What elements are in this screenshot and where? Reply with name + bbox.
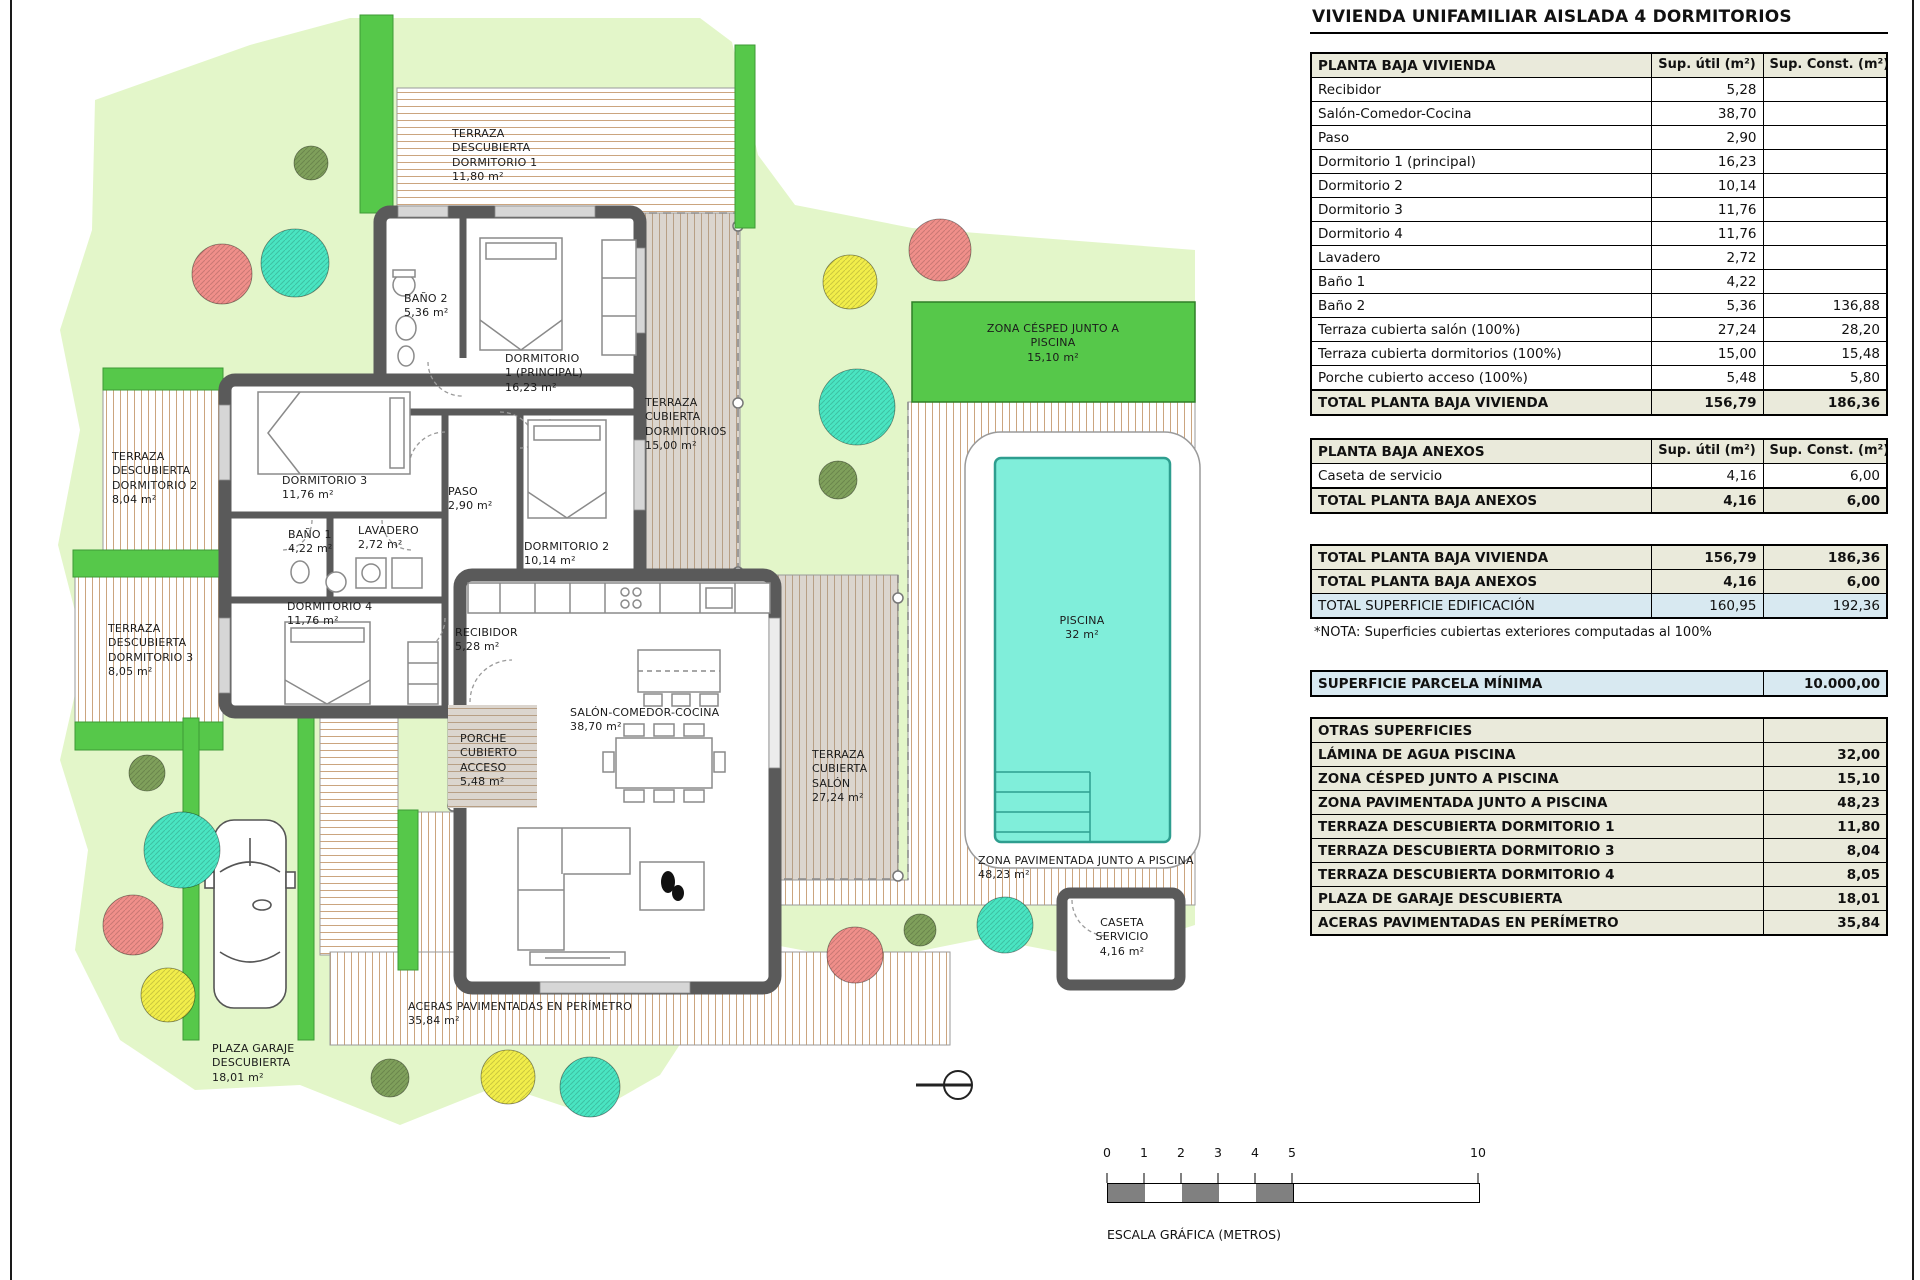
tree-olive (819, 461, 857, 499)
table-cell: 2,72 (1651, 246, 1763, 270)
label-paso: PASO 2,90 m² (448, 485, 493, 514)
table-cell: 11,76 (1651, 222, 1763, 246)
scale-tick-label: 2 (1177, 1145, 1185, 1160)
sheet-border-right (1912, 0, 1914, 1280)
table-cell (1763, 174, 1887, 198)
hedge-porch-side (398, 810, 418, 970)
label-caseta: CASETA SERVICIO 4,16 m² (1096, 916, 1149, 959)
table-cell: TERRAZA DESCUBIERTA DORMITORIO 4 (1311, 863, 1763, 887)
table-cell: 6,00 (1763, 464, 1887, 489)
table-cell: 156,79 (1651, 390, 1763, 415)
table-cell (1763, 222, 1887, 246)
table-cell: Baño 2 (1311, 294, 1651, 318)
scale-tick-mark (1255, 1173, 1256, 1183)
table-row: Lavadero2,72 (1311, 246, 1887, 270)
label-plaza-garaje: PLAZA GARAJE DESCUBIERTA 18,01 m² (212, 1042, 294, 1085)
tree-olive (904, 914, 936, 946)
tree-olive (129, 755, 165, 791)
label-porche: PORCHE CUBIERTO ACCESO 5,48 m² (460, 732, 517, 789)
parcela-label: SUPERFICIE PARCELA MÍNIMA (1311, 671, 1763, 696)
table-row: Terraza cubierta dormitorios (100%)15,00… (1311, 342, 1887, 366)
table-cell: 156,79 (1651, 545, 1763, 570)
table-cell: 192,36 (1763, 594, 1887, 619)
bed-dormitorio3 (258, 392, 410, 474)
table-row: Dormitorio 1 (principal)16,23 (1311, 150, 1887, 174)
scale-tick-label: 1 (1140, 1145, 1148, 1160)
tree-teal (977, 897, 1033, 953)
scale-tick-label: 4 (1251, 1145, 1259, 1160)
table-cell: 5,80 (1763, 366, 1887, 391)
table-row: Salón-Comedor-Cocina38,70 (1311, 102, 1887, 126)
table-cell: Dormitorio 4 (1311, 222, 1651, 246)
table-row: TOTAL SUPERFICIE EDIFICACIÓN160,95192,36 (1311, 594, 1887, 619)
scale-tick-label: 10 (1470, 1145, 1486, 1160)
table-row: TERRAZA DESCUBIERTA DORMITORIO 38,04 (1311, 839, 1887, 863)
table-cell: ACERAS PAVIMENTADAS EN PERÍMETRO (1311, 911, 1763, 936)
table-cell: ZONA PAVIMENTADA JUNTO A PISCINA (1311, 791, 1763, 815)
table-cell: PLAZA DE GARAJE DESCUBIERTA (1311, 887, 1763, 911)
table-cell: 186,36 (1763, 545, 1887, 570)
terraza-cubierta-salon-deck (770, 575, 898, 880)
table-cell: TOTAL SUPERFICIE EDIFICACIÓN (1311, 594, 1651, 619)
table-cell: 48,23 (1763, 791, 1887, 815)
table-cell: Paso (1311, 126, 1651, 150)
label-terraza-dorm3: TERRAZA DESCUBIERTA DORMITORIO 3 8,05 m² (108, 622, 193, 679)
scale-tick-mark (1218, 1173, 1219, 1183)
table-cell: ZONA CÉSPED JUNTO A PISCINA (1311, 767, 1763, 791)
table-cell: 15,48 (1763, 342, 1887, 366)
tree-teal (819, 369, 895, 445)
table-row: Recibidor5,28 (1311, 78, 1887, 102)
table-row: Porche cubierto acceso (100%)5,485,80 (1311, 366, 1887, 391)
table-cell (1763, 270, 1887, 294)
table-cell: 4,16 (1651, 570, 1763, 594)
table-cell: 8,05 (1763, 863, 1887, 887)
site-plan: TERRAZA DESCUBIERTA DORMITORIO 1 11,80 m… (0, 0, 1210, 1280)
hall-closet (408, 642, 438, 704)
table-cell: 186,36 (1763, 390, 1887, 415)
page-title: VIVIENDA UNIFAMILIAR AISLADA 4 DORMITORI… (1310, 0, 1888, 32)
label-lavadero: LAVADERO 2,72 m² (358, 524, 419, 553)
tv-bench (530, 952, 625, 965)
table-cell: Caseta de servicio (1311, 464, 1651, 489)
table-cell: Dormitorio 3 (1311, 198, 1651, 222)
label-zona-cesped: ZONA CÉSPED JUNTO A PISCINA 15,10 m² (975, 322, 1132, 365)
table-cell: Lavadero (1311, 246, 1651, 270)
table-cell (1763, 78, 1887, 102)
table-cell: Dormitorio 1 (principal) (1311, 150, 1651, 174)
terraza-descubierta-dormitorio1-deck (397, 88, 740, 213)
col-header-sup-const: Sup. Const. (m²) (1763, 53, 1887, 78)
tree-olive (294, 146, 328, 180)
table-cell: TOTAL PLANTA BAJA ANEXOS (1311, 488, 1651, 513)
table-cell: 18,01 (1763, 887, 1887, 911)
label-piscina: PISCINA 32 m² (1060, 614, 1105, 643)
scale-tick-mark (1478, 1173, 1479, 1183)
section-header: PLANTA BAJA VIVIENDA (1311, 53, 1651, 78)
label-dorm3: DORMITORIO 3 11,76 m² (282, 474, 367, 503)
table-cell (1763, 102, 1887, 126)
table-cell: 4,22 (1651, 270, 1763, 294)
hedge-left-2 (73, 550, 223, 577)
label-terraza-dorm1: TERRAZA DESCUBIERTA DORMITORIO 1 11,80 m… (452, 127, 537, 184)
tree-teal (144, 812, 220, 888)
table-row: Dormitorio 210,14 (1311, 174, 1887, 198)
table-row: Dormitorio 311,76 (1311, 198, 1887, 222)
architectural-plan-sheet: { "title": "VIVIENDA UNIFAMILIAR AISLADA… (0, 0, 1920, 1280)
table-cell (1763, 150, 1887, 174)
table-cell: 4,16 (1651, 464, 1763, 489)
scale-tick-label: 0 (1103, 1145, 1111, 1160)
table-cell: TERRAZA DESCUBIERTA DORMITORIO 1 (1311, 815, 1763, 839)
table-cell: Porche cubierto acceso (100%) (1311, 366, 1651, 391)
table-cell: 38,70 (1651, 102, 1763, 126)
label-dorm1: DORMITORIO 1 (PRINCIPAL) 16,23 m² (505, 352, 583, 395)
col-header-sup-util: Sup. útil (m²) (1651, 439, 1763, 464)
table-planta-baja-vivienda: PLANTA BAJA VIVIENDA Sup. útil (m²) Sup.… (1310, 52, 1888, 416)
label-bano1: BAÑO 1 4,22 m² (288, 528, 333, 557)
table-row: Terraza cubierta salón (100%)27,2428,20 (1311, 318, 1887, 342)
scale-tick-mark (1292, 1173, 1293, 1183)
table-cell: Recibidor (1311, 78, 1651, 102)
parcela-value: 10.000,00 (1763, 671, 1887, 696)
label-dorm4: DORMITORIO 4 11,76 m² (287, 600, 372, 629)
table-total-row: TOTAL PLANTA BAJA ANEXOS4,166,00 (1311, 488, 1887, 513)
tree-yellow (823, 255, 877, 309)
table-cell (1763, 246, 1887, 270)
table-row: ACERAS PAVIMENTADAS EN PERÍMETRO35,84 (1311, 911, 1887, 936)
table-row: Caseta de servicio4,166,00 (1311, 464, 1887, 489)
table-planta-baja-anexos: PLANTA BAJA ANEXOS Sup. útil (m²) Sup. C… (1310, 438, 1888, 514)
label-terraza-salon: TERRAZA CUBIERTA SALÓN 27,24 m² (812, 748, 867, 805)
table-cell: Terraza cubierta salón (100%) (1311, 318, 1651, 342)
table-header-row: PLANTA BAJA ANEXOS Sup. útil (m²) Sup. C… (1311, 439, 1887, 464)
tree-salmon (909, 219, 971, 281)
table-cell: 15,00 (1651, 342, 1763, 366)
table-row: Baño 25,36136,88 (1311, 294, 1887, 318)
col-header-sup-util: Sup. útil (m²) (1651, 53, 1763, 78)
tree-salmon (827, 927, 883, 983)
table-cell: 16,23 (1651, 150, 1763, 174)
bed-dormitorio1 (480, 238, 562, 350)
table-cell: 15,10 (1763, 767, 1887, 791)
table-cell: 10,14 (1651, 174, 1763, 198)
table-cell: 136,88 (1763, 294, 1887, 318)
label-zona-pavimentada: ZONA PAVIMENTADA JUNTO A PISCINA 48,23 m… (978, 854, 1194, 883)
table-row: TOTAL PLANTA BAJA ANEXOS4,166,00 (1311, 570, 1887, 594)
table-cell: Baño 1 (1311, 270, 1651, 294)
section-header: PLANTA BAJA ANEXOS (1311, 439, 1651, 464)
table-cell: LÁMINA DE AGUA PISCINA (1311, 743, 1763, 767)
table-totales: TOTAL PLANTA BAJA VIVIENDA156,79186,36TO… (1310, 544, 1888, 619)
table-cell: 4,16 (1651, 488, 1763, 513)
table-row: Dormitorio 411,76 (1311, 222, 1887, 246)
table-cell: Salón-Comedor-Cocina (1311, 102, 1651, 126)
scale-tick-mark (1144, 1173, 1145, 1183)
table-row: TERRAZA DESCUBIERTA DORMITORIO 48,05 (1311, 863, 1887, 887)
label-dorm2: DORMITORIO 2 10,14 m² (524, 540, 609, 569)
table-cell (1763, 126, 1887, 150)
table-parcela-minima: SUPERFICIE PARCELA MÍNIMA 10.000,00 (1310, 670, 1888, 697)
table-cell: 6,00 (1763, 488, 1887, 513)
table-cell: 5,48 (1651, 366, 1763, 391)
table-otras-superficies: OTRAS SUPERFICIES LÁMINA DE AGUA PISCINA… (1310, 717, 1888, 936)
pool (965, 432, 1200, 868)
table-row: TERRAZA DESCUBIERTA DORMITORIO 111,80 (1311, 815, 1887, 839)
label-aceras: ACERAS PAVIMENTADAS EN PERÍMETRO 35,84 m… (408, 1000, 632, 1029)
tree-yellow (141, 968, 195, 1022)
scale-caption: ESCALA GRÁFICA (METROS) (1107, 1227, 1281, 1242)
table-cell: 2,90 (1651, 126, 1763, 150)
table-cell: TOTAL PLANTA BAJA ANEXOS (1311, 570, 1651, 594)
north-symbol-icon (916, 1071, 972, 1099)
tree-olive (371, 1059, 409, 1097)
table-cell: 5,28 (1651, 78, 1763, 102)
scale-tick-mark (1181, 1173, 1182, 1183)
table-cell: TOTAL PLANTA BAJA VIVIENDA (1311, 545, 1651, 570)
table-cell: Terraza cubierta dormitorios (100%) (1311, 342, 1651, 366)
tree-teal (560, 1057, 620, 1117)
table-cell (1763, 198, 1887, 222)
label-bano2: BAÑO 2 5,36 m² (404, 292, 449, 321)
table-row: PLAZA DE GARAJE DESCUBIERTA18,01 (1311, 887, 1887, 911)
title-rule (1310, 32, 1888, 34)
table-cell: 6,00 (1763, 570, 1887, 594)
wardrobe (602, 240, 636, 355)
bed-dormitorio2 (528, 420, 606, 518)
table-cell: 5,36 (1651, 294, 1763, 318)
table-cell: 35,84 (1763, 911, 1887, 936)
label-salon: SALÓN-COMEDOR-COCINA 38,70 m² (570, 706, 719, 735)
table-row: Paso2,90 (1311, 126, 1887, 150)
table-cell: 28,20 (1763, 318, 1887, 342)
hedge-top-left (360, 15, 393, 213)
table-header-row: OTRAS SUPERFICIES (1311, 718, 1887, 743)
coffee-table (640, 862, 704, 910)
label-terraza-dorm2: TERRAZA DESCUBIERTA DORMITORIO 2 8,04 m² (112, 450, 197, 507)
scale-tick-mark (1107, 1173, 1108, 1183)
hedge-left-1 (103, 368, 223, 390)
pool-water (995, 458, 1170, 842)
nota-text: *NOTA: Superficies cubiertas exteriores … (1310, 619, 1888, 640)
table-cell: 8,04 (1763, 839, 1887, 863)
tree-teal (261, 229, 329, 297)
table-cell: 11,80 (1763, 815, 1887, 839)
aceras-west-strip (320, 715, 398, 955)
table-row: TOTAL PLANTA BAJA VIVIENDA156,79186,36 (1311, 545, 1887, 570)
area-summary-panel: VIVIENDA UNIFAMILIAR AISLADA 4 DORMITORI… (1310, 0, 1888, 936)
tree-yellow (481, 1050, 535, 1104)
scale-tick-label: 5 (1288, 1145, 1296, 1160)
table-row: Baño 14,22 (1311, 270, 1887, 294)
table-cell: 160,95 (1651, 594, 1763, 619)
hedge-garage-right (298, 718, 314, 1040)
table-cell: 32,00 (1763, 743, 1887, 767)
scale-tick-label: 3 (1214, 1145, 1222, 1160)
tree-salmon (103, 895, 163, 955)
table-cell: TOTAL PLANTA BAJA VIVIENDA (1311, 390, 1651, 415)
label-terraza-cub-dorms: TERRAZA CUBIERTA DORMITORIOS 15,00 m² (645, 396, 727, 453)
table-total-row: TOTAL PLANTA BAJA VIVIENDA156,79186,36 (1311, 390, 1887, 415)
table-header-row: PLANTA BAJA VIVIENDA Sup. útil (m²) Sup.… (1311, 53, 1887, 78)
empty-cell (1763, 718, 1887, 743)
tree-salmon (192, 244, 252, 304)
table-cell: TERRAZA DESCUBIERTA DORMITORIO 3 (1311, 839, 1763, 863)
hedge-top-right (735, 45, 755, 228)
col-header-sup-const: Sup. Const. (m²) (1763, 439, 1887, 464)
table-row: SUPERFICIE PARCELA MÍNIMA 10.000,00 (1311, 671, 1887, 696)
terraza-cubierta-dormitorios-deck (640, 213, 740, 575)
table-row: ZONA PAVIMENTADA JUNTO A PISCINA48,23 (1311, 791, 1887, 815)
section-header: OTRAS SUPERFICIES (1311, 718, 1763, 743)
bed-dormitorio4 (285, 622, 370, 704)
kitchen-island (638, 650, 720, 706)
table-cell: Dormitorio 2 (1311, 174, 1651, 198)
kitchen-counter (468, 583, 770, 613)
table-row: ZONA CÉSPED JUNTO A PISCINA15,10 (1311, 767, 1887, 791)
label-recibidor: RECIBIDOR 5,28 m² (455, 626, 518, 655)
table-cell: 11,76 (1651, 198, 1763, 222)
table-cell: 27,24 (1651, 318, 1763, 342)
hedge-left-3 (75, 722, 223, 750)
scale-bar (1107, 1183, 1480, 1203)
table-row: LÁMINA DE AGUA PISCINA32,00 (1311, 743, 1887, 767)
